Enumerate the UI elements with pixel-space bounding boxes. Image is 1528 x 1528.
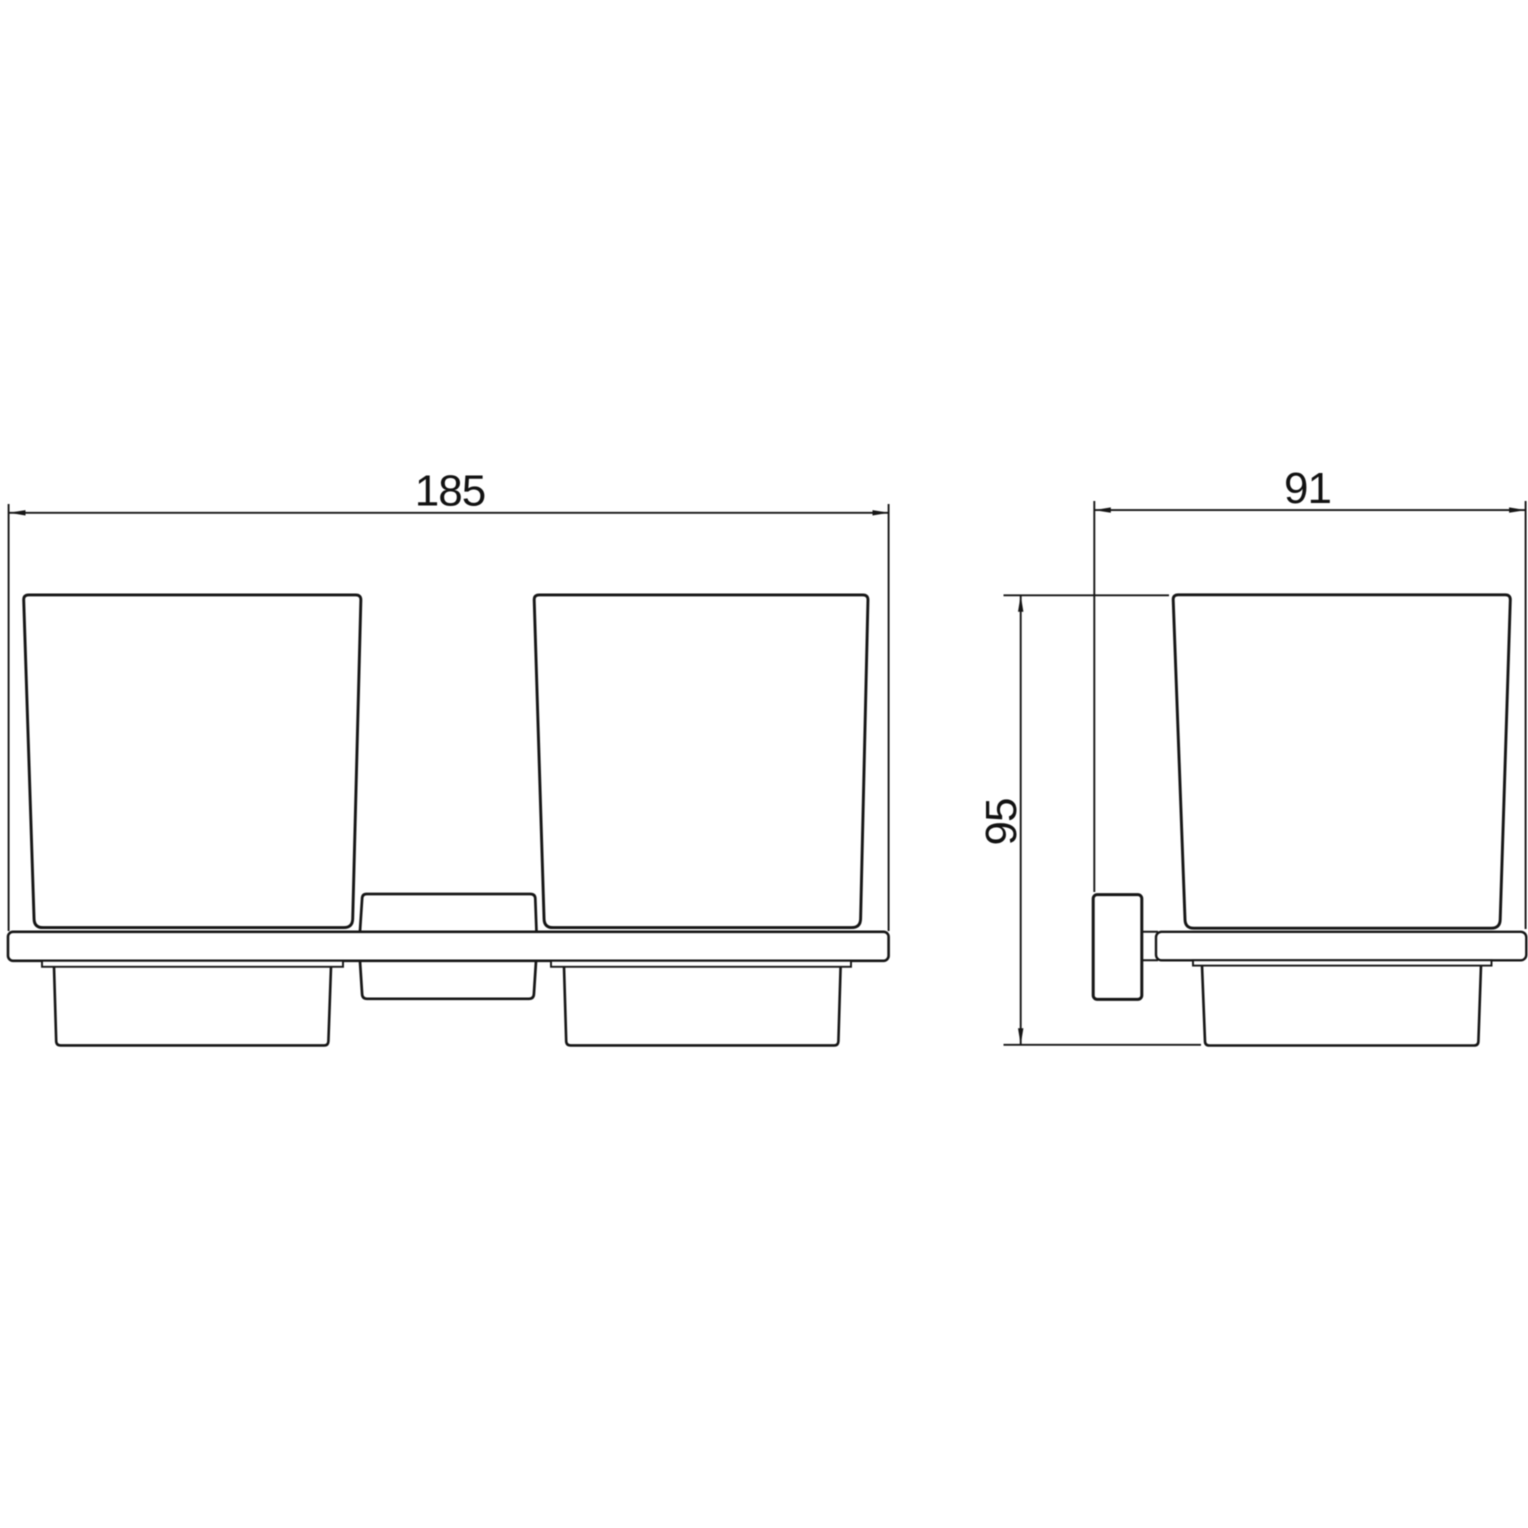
svg-text:91: 91 [1284,464,1331,513]
svg-text:185: 185 [415,467,485,516]
svg-text:95: 95 [977,799,1026,846]
